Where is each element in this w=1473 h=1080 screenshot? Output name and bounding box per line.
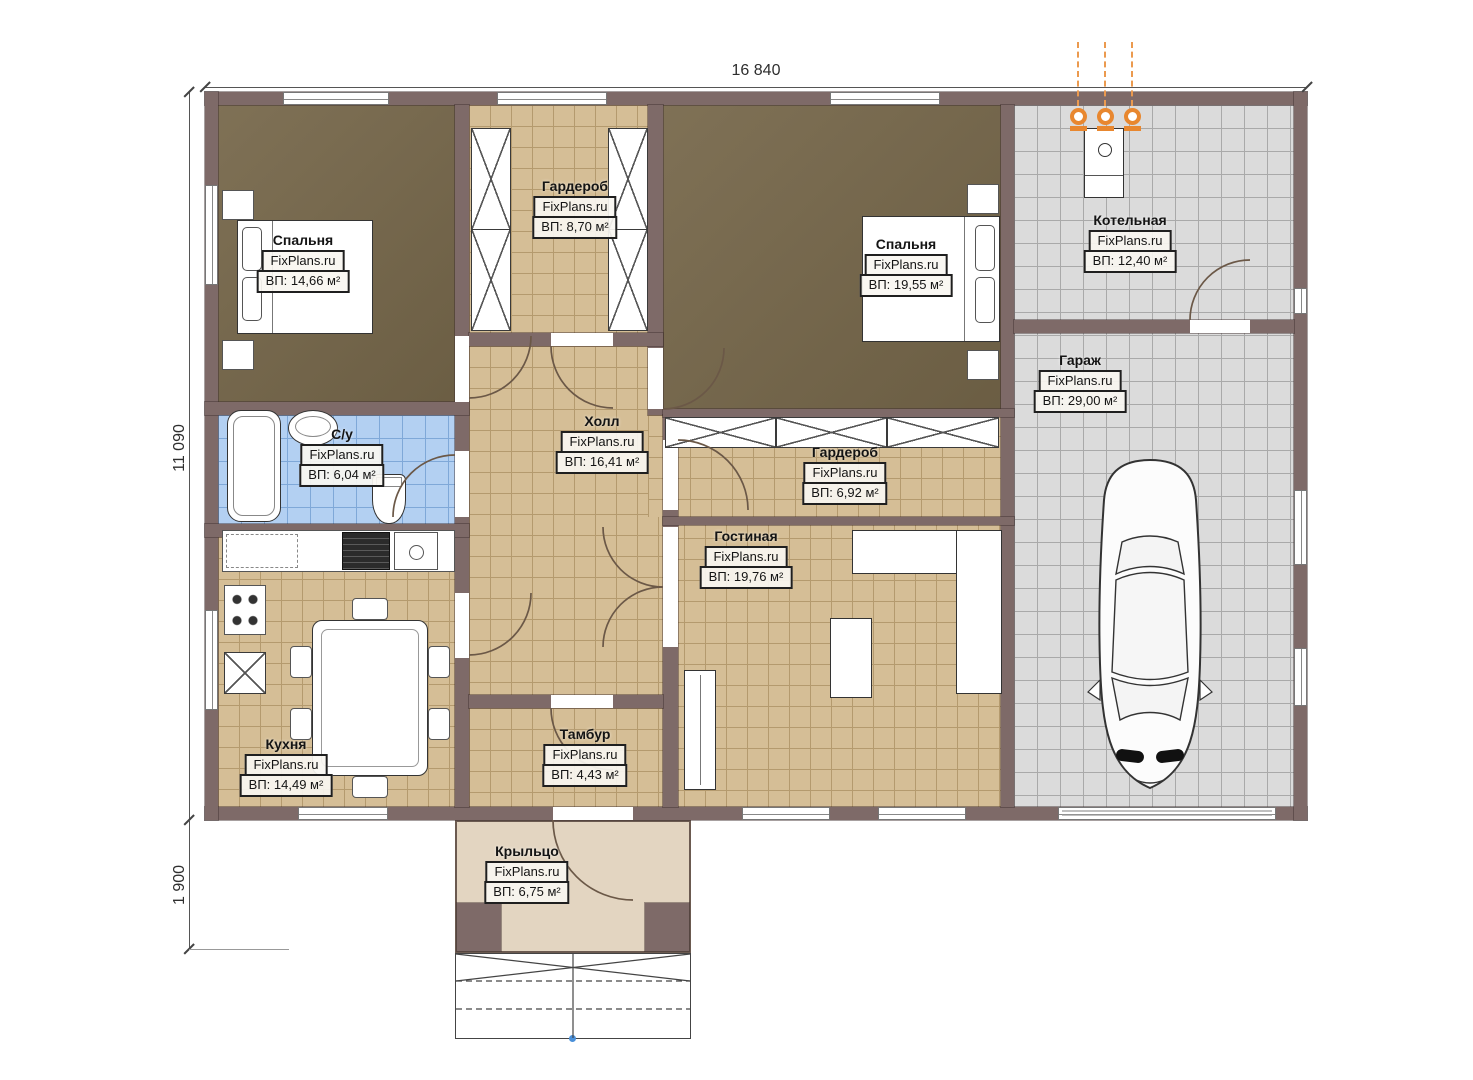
nightstand [222, 190, 254, 220]
area-box: ВП: 6,75 м² [484, 881, 569, 903]
dim-porch-label: 1 900 [171, 865, 189, 905]
garage-gate [1058, 807, 1276, 820]
window-top-wardrobe1 [497, 92, 607, 105]
room-name: Гардероб [542, 178, 608, 194]
window-right-boiler [1294, 288, 1307, 314]
pipe-connector [1097, 108, 1114, 125]
door-opening-entrance [553, 807, 633, 820]
area-box: ВП: 6,04 м² [299, 464, 384, 486]
pipe-line [1131, 42, 1133, 106]
chair [290, 646, 312, 678]
wall-boiler-bottom [1014, 320, 1294, 333]
brand-box: FixPlans.ru [560, 431, 643, 453]
wall-outer-right [1294, 92, 1307, 820]
boiler-dial [1098, 143, 1112, 157]
porch-steps [455, 953, 691, 1039]
area-box: ВП: 4,43 м² [542, 764, 627, 786]
appliance-box [224, 652, 266, 694]
pillow [975, 225, 995, 271]
pipe-base [1070, 126, 1087, 131]
room-name: Кухня [266, 736, 307, 752]
room-label-garage: Гараж FixPlans.ru ВП: 29,00 м² [1034, 352, 1127, 413]
area-box: ВП: 14,66 м² [257, 270, 350, 292]
wall-bedroom2-bottom [663, 409, 1014, 417]
pillow [975, 277, 995, 323]
door-opening-boiler [1190, 320, 1250, 333]
chair [352, 598, 388, 620]
pipe-line [1077, 42, 1079, 106]
window-right-garage-1 [1294, 490, 1307, 565]
pipe-connector [1070, 108, 1087, 125]
dim-line-left [189, 92, 190, 820]
room-name: Холл [584, 413, 619, 429]
room-label-tambur: Тамбур FixPlans.ru ВП: 4,43 м² [542, 726, 627, 787]
room-name: Гардероб [812, 444, 878, 460]
area-box: ВП: 14,49 м² [240, 774, 333, 796]
window-top-bedroom1 [283, 92, 389, 105]
area-box: ВП: 19,55 м² [860, 274, 953, 296]
floor-plan: Спальня FixPlans.ru ВП: 14,66 м² Гардеро… [0, 0, 1473, 1080]
brand-box: FixPlans.ru [1038, 370, 1121, 392]
window-left-bedroom1 [205, 185, 218, 285]
bathtub [227, 410, 281, 522]
room-label-bedroom-2: Спальня FixPlans.ru ВП: 19,55 м² [860, 236, 953, 297]
door-opening-kitchen [455, 593, 469, 658]
room-name: Гостиная [714, 528, 777, 544]
room-name: Спальня [876, 236, 936, 252]
dim-line-porch [189, 820, 190, 950]
door-opening-bedroom2 [648, 348, 663, 409]
bed-fold-line [964, 217, 965, 341]
brand-box: FixPlans.ru [300, 444, 383, 466]
room-name: Котельная [1093, 212, 1166, 228]
stove [342, 532, 390, 570]
chair [428, 646, 450, 678]
nightstand [967, 184, 999, 214]
coffee-table [830, 618, 872, 698]
window-left-kitchen [205, 610, 218, 710]
chair [428, 708, 450, 740]
brand-box: FixPlans.ru [485, 861, 568, 883]
kitchen-cabinet-dashed [226, 534, 298, 568]
door-opening-wardrobe2 [663, 440, 678, 510]
brand-box: FixPlans.ru [533, 196, 616, 218]
room-label-bathroom: С/у FixPlans.ru ВП: 6,04 м² [299, 426, 384, 487]
dim-extension-line [189, 949, 289, 950]
door-opening-tambur [551, 695, 613, 708]
window-top-bedroom2 [830, 92, 940, 105]
door-opening-living-double [663, 527, 678, 647]
closet-wardrobe1-left-a [471, 128, 511, 230]
room-label-kitchen: Кухня FixPlans.ru ВП: 14,49 м² [240, 736, 333, 797]
area-box: ВП: 6,92 м² [802, 482, 887, 504]
door-opening-bedroom1 [455, 336, 469, 402]
brand-box: FixPlans.ru [864, 254, 947, 276]
dim-line-top [205, 87, 1307, 88]
pipe-connector [1124, 108, 1141, 125]
door-opening-wardrobe1 [551, 333, 613, 346]
tv-cabinet-line [700, 675, 701, 785]
steps-marker-dot [569, 1035, 576, 1042]
brand-box: FixPlans.ru [704, 546, 787, 568]
cooktop-burners [224, 585, 266, 635]
nightstand [222, 340, 254, 370]
window-bottom-kitchen [298, 807, 388, 820]
room-name: Крыльцо [495, 843, 559, 859]
closet-wardrobe1-right-b [608, 229, 648, 331]
pipe-line [1104, 42, 1106, 106]
wall-wardrobe2-bottom [663, 517, 1014, 525]
bathtub-inner [233, 416, 275, 516]
room-label-bedroom-1: Спальня FixPlans.ru ВП: 14,66 м² [257, 232, 350, 293]
window-bottom-living-2 [878, 807, 966, 820]
room-label-porch: Крыльцо FixPlans.ru ВП: 6,75 м² [484, 843, 569, 904]
window-right-garage-2 [1294, 648, 1307, 706]
nightstand [967, 350, 999, 380]
porch-column-right [645, 903, 689, 951]
sofa-chaise [956, 530, 1002, 694]
kitchen-sink-drain [409, 545, 424, 560]
brand-box: FixPlans.ru [803, 462, 886, 484]
closet-wardrobe2-c [887, 417, 999, 448]
dim-width-label: 16 840 [732, 62, 781, 80]
window-bottom-living-1 [742, 807, 830, 820]
closet-wardrobe2-a [665, 417, 776, 448]
pipe-base [1097, 126, 1114, 131]
boiler-line [1085, 175, 1123, 176]
brand-box: FixPlans.ru [244, 754, 327, 776]
porch-column-left [457, 903, 501, 951]
dining-table-inner [321, 629, 419, 767]
room-label-wardrobe-2: Гардероб FixPlans.ru ВП: 6,92 м² [802, 444, 887, 505]
brand-box: FixPlans.ru [543, 744, 626, 766]
room-name: С/у [331, 426, 353, 442]
room-label-hall: Холл FixPlans.ru ВП: 16,41 м² [556, 413, 649, 474]
area-box: ВП: 16,41 м² [556, 451, 649, 473]
area-box: ВП: 19,76 м² [700, 566, 793, 588]
area-box: ВП: 8,70 м² [532, 216, 617, 238]
closet-wardrobe1-left-b [471, 229, 511, 331]
room-label-boiler: Котельная FixPlans.ru ВП: 12,40 м² [1084, 212, 1177, 273]
area-box: ВП: 29,00 м² [1034, 390, 1127, 412]
car-top-view [1082, 452, 1218, 796]
chair [352, 776, 388, 798]
room-name: Гараж [1059, 352, 1101, 368]
wall-v4-garage [1001, 105, 1014, 807]
boiler-unit [1084, 128, 1124, 198]
room-label-wardrobe-1: Гардероб FixPlans.ru ВП: 8,70 м² [532, 178, 617, 239]
kitchen-sink [394, 532, 438, 570]
dim-height-label: 11 090 [171, 424, 189, 472]
floor-hall [469, 346, 663, 695]
brand-box: FixPlans.ru [261, 250, 344, 272]
room-label-living: Гостиная FixPlans.ru ВП: 19,76 м² [700, 528, 793, 589]
tv-cabinet [684, 670, 716, 790]
room-name: Тамбур [560, 726, 611, 742]
pipe-base [1124, 126, 1141, 131]
area-box: ВП: 12,40 м² [1084, 250, 1177, 272]
room-name: Спальня [273, 232, 333, 248]
brand-box: FixPlans.ru [1088, 230, 1171, 252]
door-opening-bathroom [455, 451, 469, 517]
